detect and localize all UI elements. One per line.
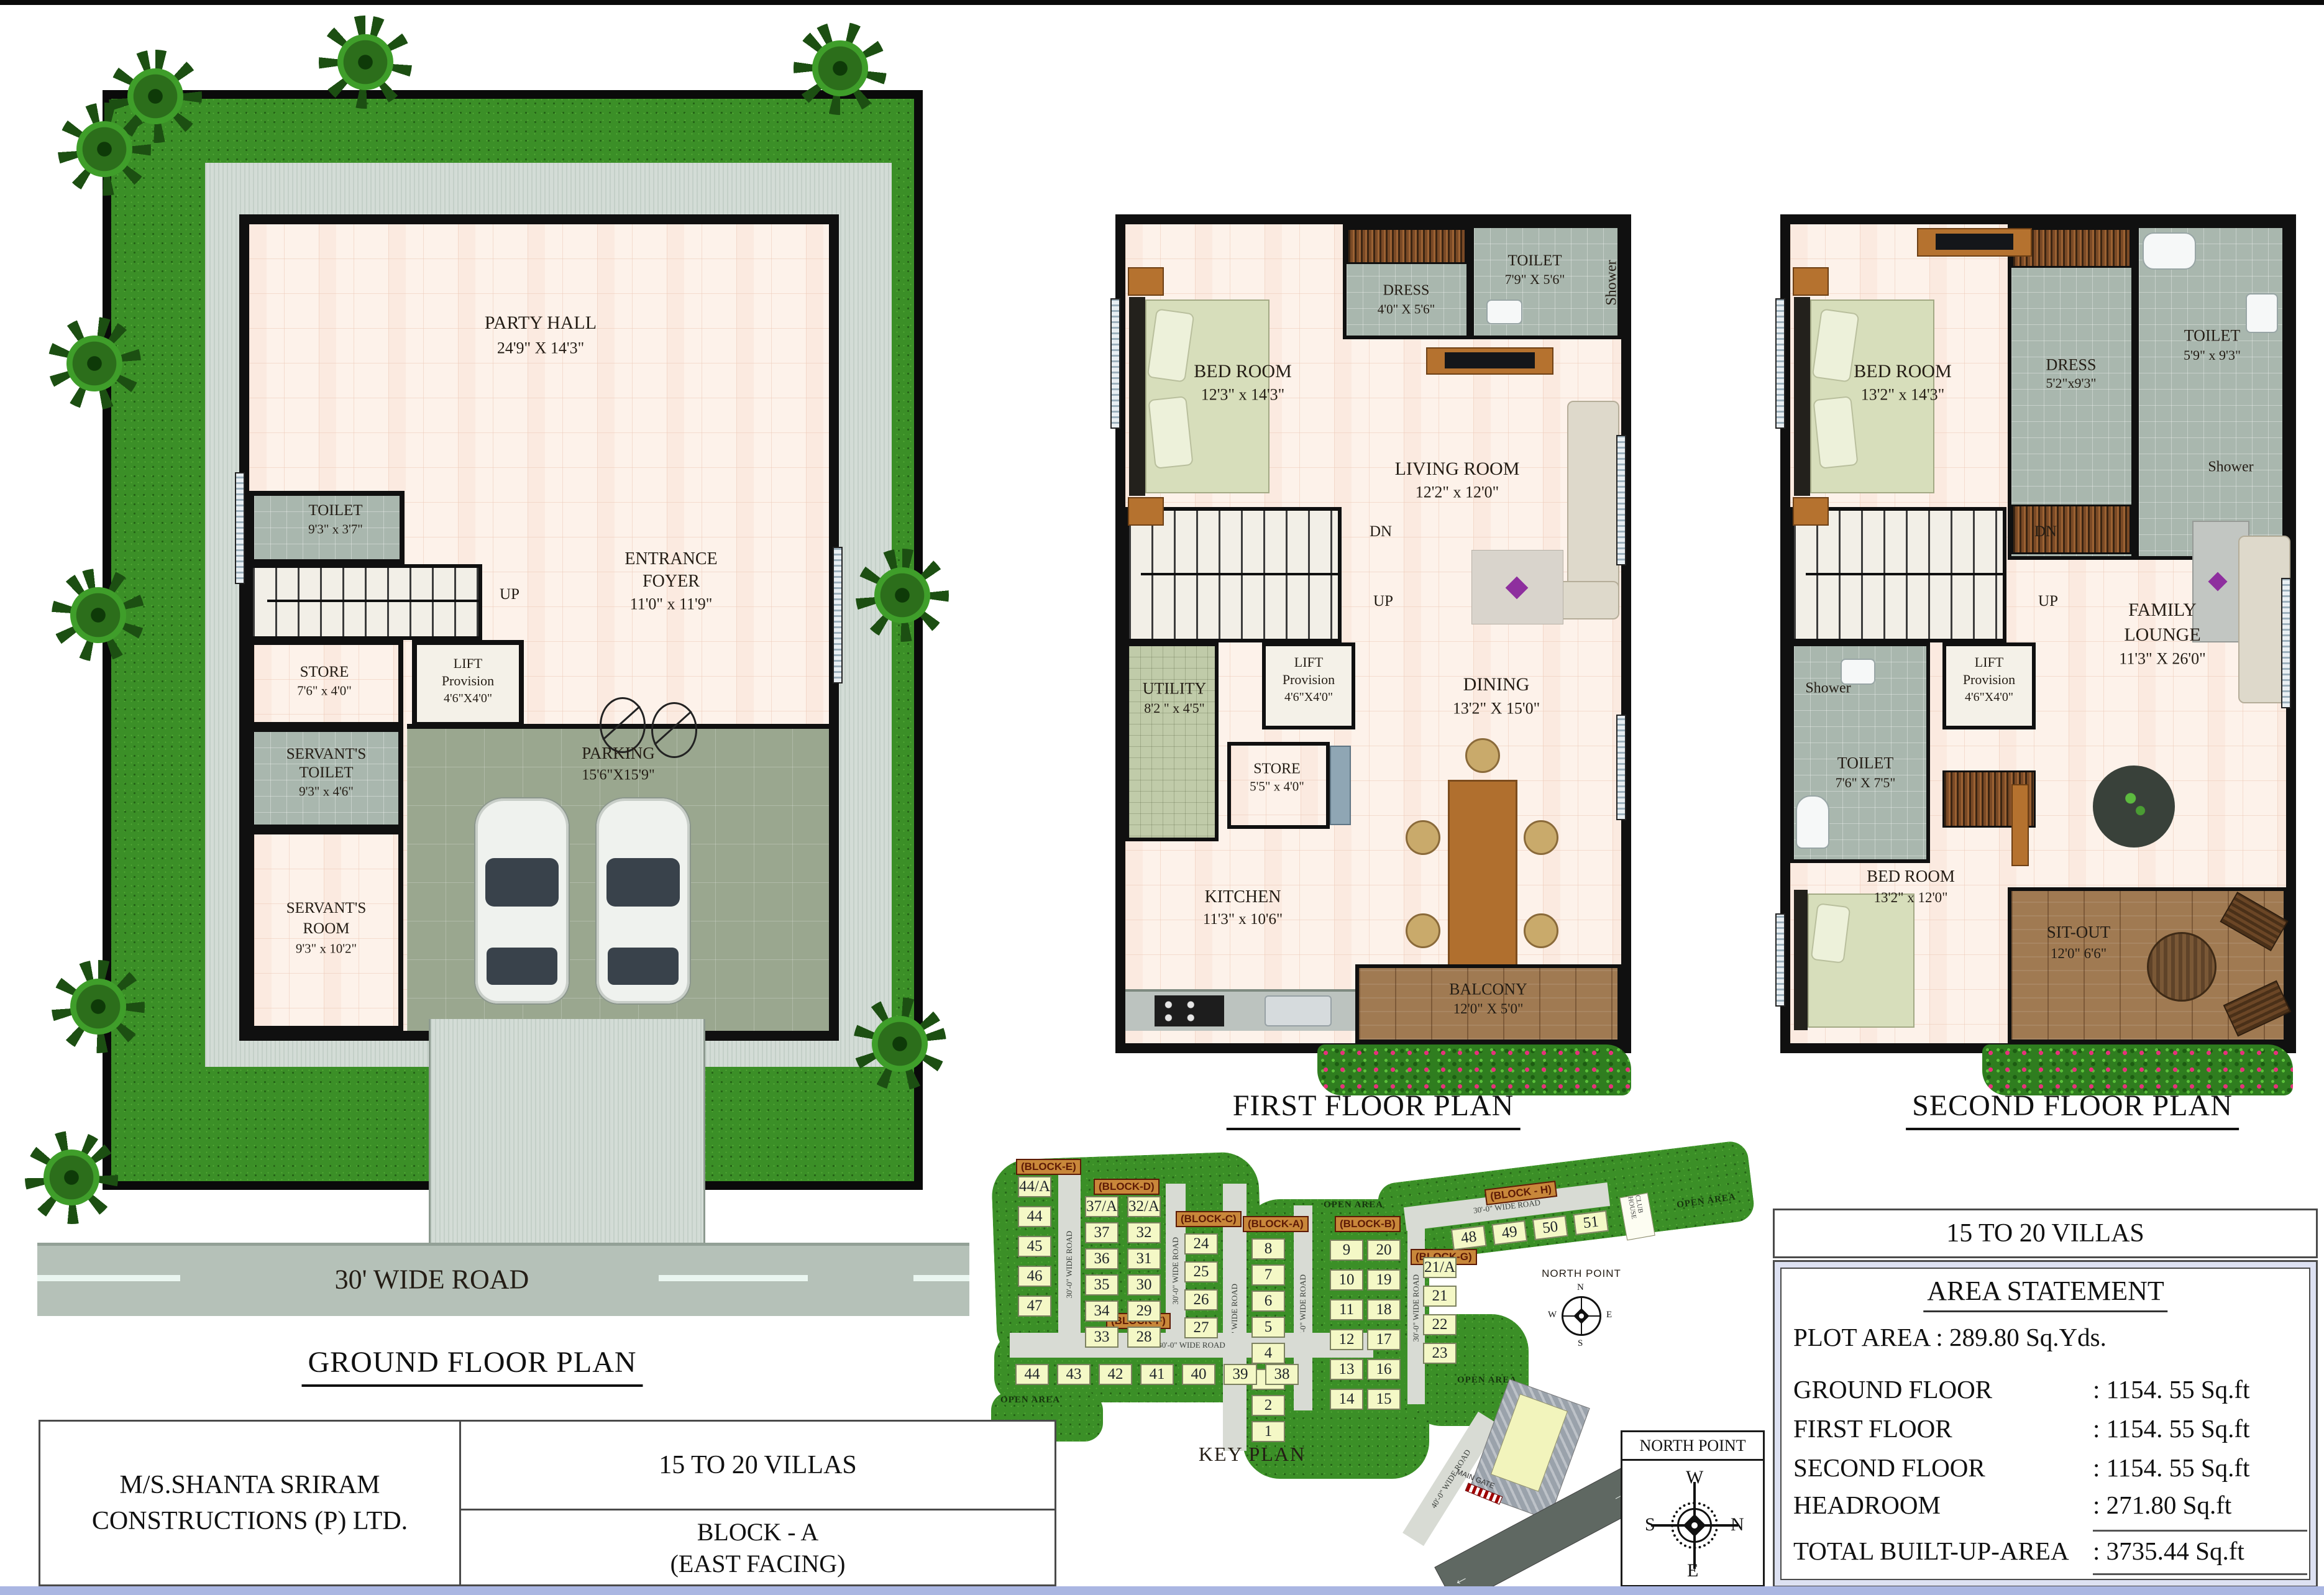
block-label-e: (BLOCK-E) bbox=[1016, 1159, 1081, 1175]
road-label: 30'-0" WIDE ROAD bbox=[1298, 1274, 1308, 1342]
ff-toilet-dim: 7'9" X 5'6" bbox=[1505, 272, 1565, 288]
area-total-label: TOTAL BUILT-UP-AREA bbox=[1793, 1536, 2069, 1566]
window bbox=[235, 472, 245, 584]
sf-bed-room2-label: BED ROOM bbox=[1867, 866, 1955, 886]
gf-servants-room-label-2: ROOM bbox=[303, 920, 349, 938]
ff-utility-room bbox=[1125, 642, 1219, 841]
plot: 32 bbox=[1127, 1222, 1161, 1243]
ff-bed-headboard bbox=[1129, 297, 1145, 496]
area-row-label: HEADROOM bbox=[1793, 1490, 1941, 1520]
ff-nightstand bbox=[1128, 497, 1164, 526]
plot: 37/A bbox=[1085, 1196, 1119, 1217]
plot: 6 bbox=[1251, 1291, 1285, 1312]
big-compass: W S N E bbox=[1645, 1467, 1744, 1583]
floor-plan-sheet: 30' WIDE ROAD PARTY HALL 24'9" X 14'3" T… bbox=[0, 0, 2324, 1595]
gf-parking-dim: 15'6"X15'9" bbox=[582, 767, 655, 785]
ff-stair-rail bbox=[1141, 573, 1342, 575]
plot: 15 bbox=[1367, 1389, 1401, 1410]
plot: 28 bbox=[1127, 1327, 1161, 1348]
plot: 33 bbox=[1085, 1327, 1119, 1348]
open-area-label: OPEN AREA bbox=[1000, 1395, 1060, 1405]
ff-utility-label: UTILITY bbox=[1143, 679, 1207, 698]
plot-column-g: 21/A 21 22 23 bbox=[1423, 1257, 1457, 1364]
area-row-label: FIRST FLOOR bbox=[1793, 1414, 1952, 1443]
window bbox=[1775, 913, 1785, 1007]
compass-icon bbox=[1691, 1522, 1698, 1529]
area-divider bbox=[2093, 1573, 2307, 1575]
ff-toilet-label: TOILET bbox=[1507, 252, 1562, 270]
plot: 12 bbox=[1330, 1329, 1363, 1350]
gf-lift-label-2: Provision bbox=[442, 673, 494, 689]
block-label-d: (BLOCK-D) bbox=[1094, 1179, 1160, 1195]
window bbox=[1775, 298, 1785, 429]
area-row-value: : 1154. 55 Sq.ft bbox=[2093, 1374, 2249, 1404]
window bbox=[1616, 435, 1626, 565]
ff-dn-label: DN bbox=[1370, 523, 1392, 541]
window bbox=[1110, 298, 1120, 429]
plot-column-d2: 32/A 32 31 30 29 28 bbox=[1127, 1196, 1161, 1348]
sf-toilet2-label: TOILET bbox=[1837, 753, 1894, 772]
ff-balcony-label: BALCONY bbox=[1449, 979, 1527, 999]
car bbox=[475, 798, 569, 1003]
ff-living-room-dim: 12'2" x 12'0" bbox=[1416, 482, 1499, 501]
gf-stair-rail bbox=[267, 600, 482, 602]
sf-bed-headboard bbox=[1794, 297, 1810, 496]
top-border bbox=[0, 0, 2324, 5]
gf-lift-label-1: LIFT bbox=[454, 656, 482, 672]
sf-patio-table bbox=[2147, 932, 2216, 1002]
company-name-line1: M/S.SHANTA SRIRAM bbox=[119, 1470, 380, 1500]
project-box: 15 TO 20 VILLAS bbox=[461, 1420, 1056, 1510]
window bbox=[2281, 578, 2291, 708]
gf-up-label: UP bbox=[500, 585, 519, 604]
sf-nightstand bbox=[1793, 267, 1829, 296]
villas-header-box: 15 TO 20 VILLAS bbox=[1773, 1209, 2318, 1258]
plot: 21 bbox=[1423, 1286, 1457, 1307]
ff-lift-dim: 4'6"X4'0" bbox=[1284, 690, 1333, 705]
plot: 44 bbox=[1018, 1206, 1051, 1227]
gf-servants-room-label-1: SERVANT'S bbox=[286, 899, 366, 918]
ff-sink bbox=[1265, 995, 1332, 1026]
plot: 36 bbox=[1085, 1248, 1119, 1269]
plot-area-line: PLOT AREA : 289.80 Sq.Yds. bbox=[1793, 1322, 2107, 1352]
gf-toilet-label: TOILET bbox=[308, 501, 362, 520]
plot: 37 bbox=[1085, 1222, 1119, 1243]
gf-driveway bbox=[429, 1019, 705, 1246]
gf-foyer-label-1: ENTRANCE bbox=[624, 549, 717, 570]
area-row-label: SECOND FLOOR bbox=[1793, 1453, 1985, 1483]
sf-sit-out-label: SIT-OUT bbox=[2047, 922, 2111, 942]
road-label: 30'-0" WIDE ROAD bbox=[1171, 1237, 1181, 1305]
gf-servants-toilet-label-2: TOILET bbox=[299, 764, 353, 782]
sf-wc bbox=[1796, 795, 1829, 849]
north-point-label: NORTH POINT bbox=[1542, 1268, 1621, 1280]
plot: 51 bbox=[1573, 1210, 1609, 1235]
plot: 47 bbox=[1018, 1296, 1051, 1317]
plot: 42 bbox=[1099, 1364, 1132, 1385]
road-label: 30'-0" WIDE ROAD bbox=[1411, 1274, 1421, 1342]
plot: 32/A bbox=[1127, 1196, 1161, 1217]
plot: 26 bbox=[1184, 1289, 1218, 1310]
plot: 45 bbox=[1018, 1236, 1051, 1257]
sf-stair-rail bbox=[1806, 573, 2006, 575]
sf-bed2-pillow bbox=[1811, 903, 1851, 964]
ff-nightstand bbox=[1128, 267, 1164, 296]
plot: 24 bbox=[1184, 1233, 1218, 1255]
plot: 9 bbox=[1330, 1240, 1363, 1261]
sf-round-rug bbox=[2093, 766, 2175, 848]
plot: 44/A bbox=[1018, 1176, 1051, 1197]
compass-icon bbox=[1579, 1314, 1584, 1319]
plot: 41 bbox=[1140, 1364, 1174, 1385]
sf-lift-dim: 4'6"X4'0" bbox=[1965, 690, 2013, 705]
plot: 14 bbox=[1330, 1389, 1363, 1410]
palm-tree bbox=[856, 549, 949, 642]
plot: 40 bbox=[1182, 1364, 1215, 1385]
plot-row-f: 44 43 42 41 40 39 38 bbox=[1015, 1364, 1299, 1385]
plot: 38 bbox=[1265, 1364, 1299, 1385]
plot: 17 bbox=[1367, 1329, 1401, 1350]
ff-flower-bed bbox=[1317, 1044, 1631, 1095]
block-name: BLOCK - A bbox=[697, 1517, 819, 1547]
ff-dress-dim: 4'0" X 5'6" bbox=[1378, 301, 1435, 317]
sf-lounge-dim: 11'3" X 26'0" bbox=[2119, 649, 2205, 668]
sf-bed-room2-dim: 13'2" x 12'0" bbox=[1873, 889, 1947, 907]
gf-servants-toilet-label-1: SERVANT'S bbox=[286, 745, 366, 764]
road-dash bbox=[659, 1275, 808, 1281]
plot-column-c: 24 25 26 27 bbox=[1184, 1233, 1218, 1338]
compass-n: N bbox=[1577, 1282, 1584, 1293]
dining-chair bbox=[1524, 820, 1558, 855]
road-dash bbox=[37, 1275, 180, 1281]
plot: 10 bbox=[1330, 1269, 1363, 1291]
sf-bed2-headboard bbox=[1794, 890, 1808, 1030]
road-label: 30' WIDE ROAD bbox=[335, 1264, 529, 1297]
keyplan-road: 30'-0" WIDE ROAD bbox=[1166, 1184, 1186, 1358]
sf-bed-room-label: BED ROOM bbox=[1854, 360, 1952, 383]
window bbox=[1616, 715, 1626, 820]
plot: 50 bbox=[1532, 1215, 1568, 1240]
ff-dress-label: DRESS bbox=[1383, 282, 1430, 300]
compass-s: S bbox=[1578, 1338, 1583, 1349]
dining-chair bbox=[1406, 820, 1440, 855]
sf-dress-dim: 5'2"x9'3" bbox=[2046, 375, 2097, 391]
plot: 39 bbox=[1224, 1364, 1257, 1385]
window bbox=[833, 547, 843, 683]
road-dash bbox=[913, 1275, 969, 1281]
palm-tree bbox=[311, 8, 419, 116]
area-row-value: : 1154. 55 Sq.ft bbox=[2093, 1453, 2249, 1483]
plot: 35 bbox=[1085, 1274, 1119, 1296]
plot: 20 bbox=[1367, 1240, 1401, 1261]
sf-tv bbox=[1936, 234, 2013, 250]
ff-bed-room-dim: 12'3" x 14'3" bbox=[1201, 385, 1285, 404]
area-statement-title: AREA STATEMENT bbox=[1923, 1275, 2167, 1312]
area-total-value: : 3735.44 Sq.ft bbox=[2093, 1536, 2244, 1566]
ff-balcony-dim: 12'0" X 5'0" bbox=[1453, 1000, 1524, 1018]
sf-toilet2-dim: 7'6" X 7'5" bbox=[1836, 775, 1896, 791]
palm-tree bbox=[58, 103, 151, 196]
sf-shower-label: Shower bbox=[2208, 459, 2253, 477]
plot: 44 bbox=[1015, 1364, 1049, 1385]
ff-lift-label-2: Provision bbox=[1283, 672, 1335, 688]
ff-wash-basin bbox=[1486, 299, 1522, 324]
sf-toilet-dim: 5'9" x 9'3" bbox=[2184, 347, 2241, 363]
plot: 22 bbox=[1423, 1314, 1457, 1335]
plot: 29 bbox=[1127, 1300, 1161, 1322]
plot: 23 bbox=[1423, 1343, 1457, 1364]
area-divider bbox=[2093, 1530, 2307, 1532]
sf-bed-pillow bbox=[1813, 396, 1858, 469]
compass-w: W bbox=[1548, 1310, 1557, 1320]
area-row-label: GROUND FLOOR bbox=[1793, 1374, 1992, 1404]
plot: 7 bbox=[1251, 1264, 1285, 1286]
sf-dress-label: DRESS bbox=[2046, 355, 2097, 374]
plot: 21/A bbox=[1423, 1257, 1457, 1278]
plot: 5 bbox=[1251, 1317, 1285, 1338]
ff-kitchen-dim: 11'3" x 10'6" bbox=[1203, 910, 1283, 929]
plot: 46 bbox=[1018, 1266, 1051, 1287]
plot: 49 bbox=[1491, 1220, 1527, 1245]
ff-living-room-label: LIVING ROOM bbox=[1395, 458, 1520, 480]
ff-lift-label-1: LIFT bbox=[1294, 654, 1323, 670]
keyplan-road: 30'-0" WIDE ROAD bbox=[1407, 1212, 1425, 1404]
ff-store-label: STORE bbox=[1253, 761, 1301, 779]
plot: 13 bbox=[1330, 1359, 1363, 1380]
sf-lounge-label-2: LOUNGE bbox=[2124, 624, 2200, 646]
gf-foyer-label-2: FOYER bbox=[643, 571, 700, 592]
road-label: 30'-0" WIDE ROAD bbox=[1158, 1340, 1225, 1350]
sf-dn-label: DN bbox=[2034, 523, 2057, 541]
company-name-line2: CONSTRUCTIONS (P) LTD. bbox=[92, 1506, 408, 1536]
sf-toilet-room bbox=[2135, 224, 2286, 560]
sf-sit-out-dim: 12'0" 6'6" bbox=[2051, 945, 2107, 962]
plot: 2 bbox=[1251, 1395, 1285, 1416]
block-label-b: (BLOCK-B) bbox=[1335, 1216, 1401, 1232]
sf-shower2-label: Shower bbox=[1805, 680, 1851, 698]
ff-stove bbox=[1155, 995, 1224, 1026]
north-point-title: NORTH POINT bbox=[1639, 1437, 1745, 1455]
sf-bed-room-dim: 13'2" x 14'3" bbox=[1861, 385, 1945, 404]
sf-lounge-label-1: FAMILY bbox=[2128, 599, 2197, 621]
ff-bed-room-label: BED ROOM bbox=[1194, 360, 1292, 383]
ff-dining-label: DINING bbox=[1463, 674, 1530, 696]
gf-servants-room-dim: 9'3" x 10'2" bbox=[296, 941, 357, 956]
gf-parking-label: PARKING bbox=[582, 743, 655, 763]
plot: 16 bbox=[1367, 1359, 1401, 1380]
road-label: 30'-0" WIDE ROAD bbox=[1064, 1231, 1074, 1299]
plot: 4 bbox=[1251, 1343, 1285, 1364]
block-label-c: (BLOCK-C) bbox=[1176, 1211, 1242, 1227]
gf-staircase bbox=[249, 564, 482, 640]
north-point-header: NORTH POINT bbox=[1622, 1432, 1763, 1461]
sf-wardrobe bbox=[2011, 505, 2131, 554]
plot: 25 bbox=[1184, 1261, 1218, 1282]
project-title: 15 TO 20 VILLAS bbox=[659, 1450, 857, 1480]
gf-lift-dim: 4'6"X4'0" bbox=[444, 691, 492, 706]
gf-store-label: STORE bbox=[300, 663, 349, 682]
palm-tree bbox=[52, 960, 145, 1053]
sf-lift-label-1: LIFT bbox=[1975, 654, 2003, 670]
plot: 48 bbox=[1451, 1225, 1487, 1250]
gf-servants-toilet-dim: 9'3" x 4'6" bbox=[299, 784, 354, 799]
plot: 30 bbox=[1127, 1274, 1161, 1296]
ff-tv bbox=[1445, 352, 1535, 368]
ff-dining-table bbox=[1448, 780, 1517, 985]
club-house-label: CLUB HOUSE bbox=[1626, 1194, 1648, 1238]
ff-store-door bbox=[1330, 746, 1351, 825]
dining-chair bbox=[1524, 913, 1558, 948]
sf-bathtub bbox=[2143, 232, 2196, 270]
dining-chair bbox=[1465, 738, 1500, 773]
plot: 11 bbox=[1330, 1299, 1363, 1320]
ff-bed-pillow bbox=[1148, 396, 1193, 469]
key-plan-title: KEY PLAN bbox=[1199, 1442, 1306, 1466]
gf-plan-title: GROUND FLOOR PLAN bbox=[301, 1345, 643, 1387]
keyplan-road: 30'-0" WIDE ROAD bbox=[1058, 1171, 1081, 1358]
sf-toilet-label: TOILET bbox=[2184, 326, 2241, 345]
dining-chair bbox=[1406, 913, 1440, 948]
sf-up-label: UP bbox=[2038, 592, 2058, 611]
villas-header: 15 TO 20 VILLAS bbox=[1946, 1218, 2144, 1248]
sf-nightstand bbox=[1793, 497, 1829, 526]
compass-e: E bbox=[1606, 1310, 1612, 1320]
plot-column-b1: 9 10 11 12 13 14 bbox=[1330, 1240, 1363, 1410]
keyplan-north-point: NORTH POINT N W E S bbox=[1538, 1268, 1625, 1355]
gf-store-dim: 7'6" x 4'0" bbox=[297, 683, 352, 698]
plot: 43 bbox=[1057, 1364, 1091, 1385]
plot-column-a: 8 7 6 5 4 3 2 1 bbox=[1251, 1238, 1285, 1442]
open-area-label: OPEN AREA bbox=[1324, 1200, 1383, 1210]
gate-symbol bbox=[651, 702, 697, 758]
ff-kitchen-label: KITCHEN bbox=[1205, 887, 1281, 908]
plot: 1 bbox=[1251, 1421, 1285, 1442]
block-label-a: (BLOCK-A) bbox=[1243, 1216, 1309, 1232]
company-box: M/S.SHANTA SRIRAM CONSTRUCTIONS (P) LTD. bbox=[39, 1420, 461, 1586]
area-row-value: : 1154. 55 Sq.ft bbox=[2093, 1414, 2249, 1443]
plot: 8 bbox=[1251, 1238, 1285, 1259]
area-row-value: : 271.80 Sq.ft bbox=[2093, 1490, 2231, 1520]
sf-cabinet bbox=[2011, 784, 2029, 866]
ff-shower-label: Shower bbox=[1603, 260, 1621, 305]
gf-toilet-dim: 9'3" x 3'7" bbox=[308, 521, 363, 537]
plot-column-b2: 20 19 18 17 16 15 bbox=[1367, 1240, 1401, 1410]
gf-foyer-dim: 11'0" x 11'9" bbox=[630, 594, 713, 613]
ff-dining-dim: 13'2" X 15'0" bbox=[1453, 698, 1540, 718]
sf-lift-label-2: Provision bbox=[1963, 672, 2015, 688]
block-facing: (EAST FACING) bbox=[670, 1549, 846, 1578]
ff-plan-title: FIRST FLOOR PLAN bbox=[1227, 1089, 1521, 1130]
car bbox=[597, 798, 690, 1003]
plot: 34 bbox=[1085, 1300, 1119, 1322]
plot-column-e: 44/A 44 45 46 47 bbox=[1018, 1176, 1051, 1317]
ff-store-dim: 5'5" x 4'0" bbox=[1250, 779, 1304, 794]
gf-party-hall-dim: 24'9" X 14'3" bbox=[497, 338, 584, 357]
ff-wardrobe bbox=[1347, 228, 1466, 264]
ff-up-label: UP bbox=[1373, 592, 1393, 611]
north-point-box: NORTH POINT W S N E bbox=[1621, 1430, 1765, 1587]
plot-column-d1: 37/A 37 36 35 34 33 bbox=[1085, 1196, 1119, 1348]
block-box: BLOCK - A (EAST FACING) bbox=[461, 1510, 1056, 1586]
plot: 19 bbox=[1367, 1269, 1401, 1291]
bottom-bar bbox=[0, 1586, 2324, 1595]
plot: 18 bbox=[1367, 1299, 1401, 1320]
plot: 27 bbox=[1184, 1317, 1218, 1338]
plot: 31 bbox=[1127, 1248, 1161, 1269]
sf-flower-bed bbox=[1982, 1044, 2293, 1095]
sf-wash-basin bbox=[2246, 293, 2278, 333]
ff-utility-dim: 8'2 " x 4'5" bbox=[1144, 700, 1204, 716]
sf-plan-title: SECOND FLOOR PLAN bbox=[1906, 1089, 2239, 1130]
gf-party-hall-label: PARTY HALL bbox=[485, 312, 597, 334]
